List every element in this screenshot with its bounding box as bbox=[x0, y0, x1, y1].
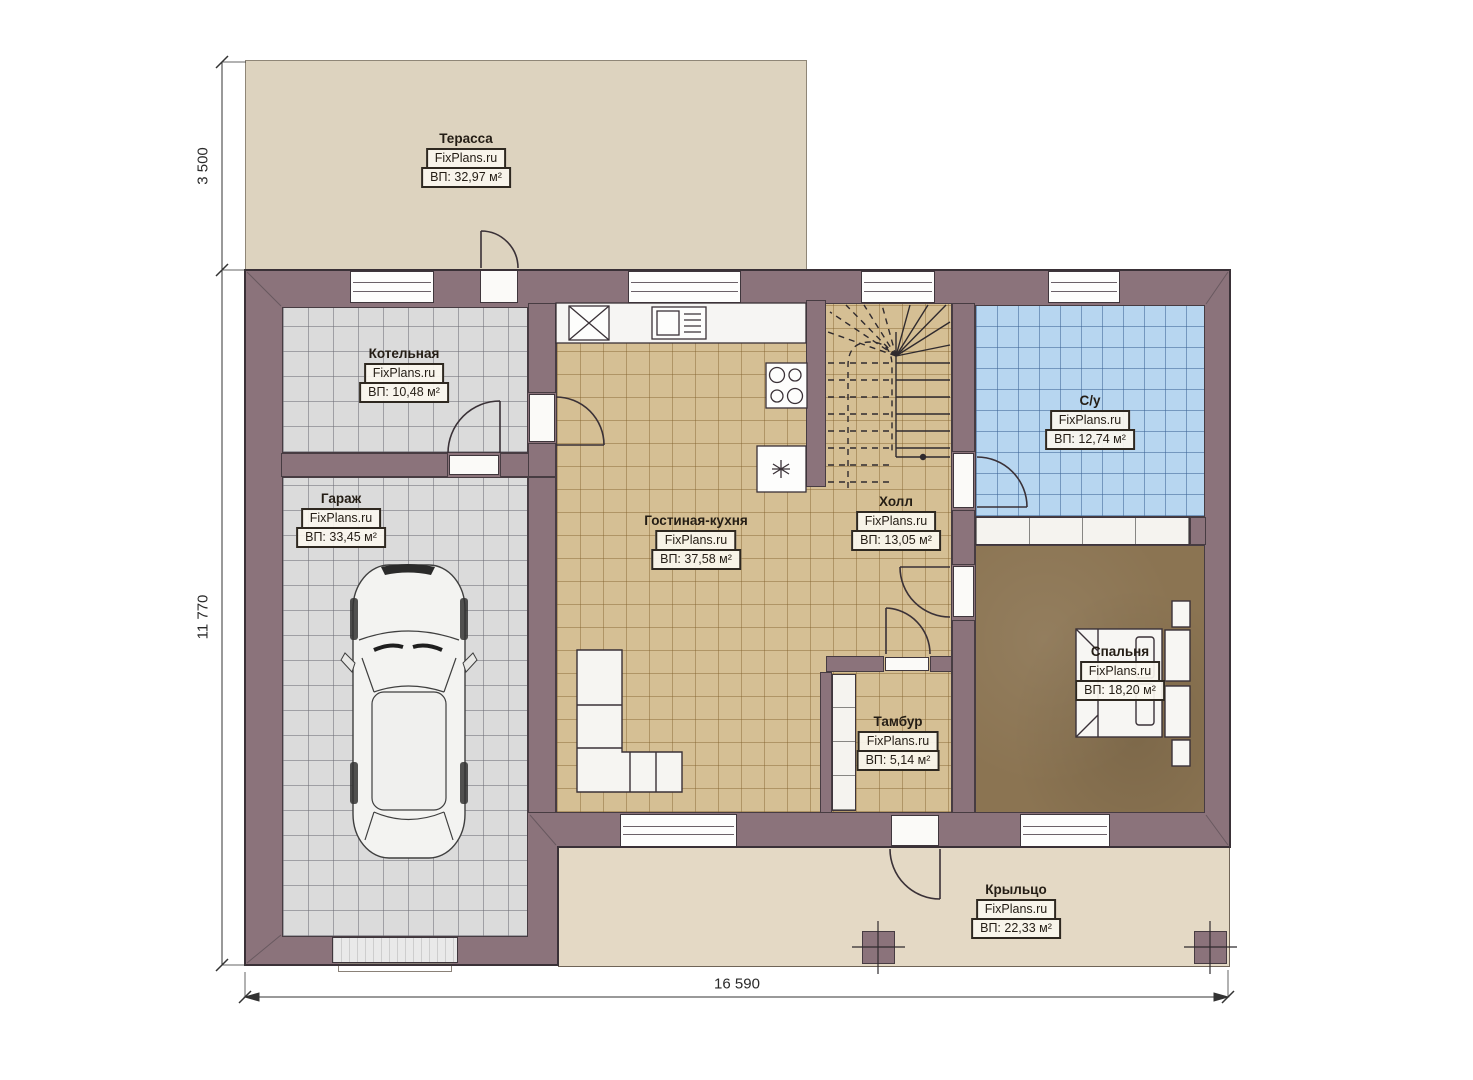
brand: FixPlans.ru bbox=[976, 899, 1057, 920]
room-area: ВП: 22,33 м² bbox=[971, 918, 1061, 939]
room-area: ВП: 37,58 м² bbox=[651, 549, 741, 570]
label-boiler: Котельная FixPlans.ru ВП: 10,48 м² bbox=[359, 346, 449, 403]
dimension-house-height: 11 770 bbox=[195, 595, 212, 640]
wall-boiler-garage-right bbox=[500, 453, 529, 477]
brand: FixPlans.ru bbox=[426, 148, 507, 169]
room-name: Котельная bbox=[369, 346, 440, 361]
wall-tambour-top-right bbox=[930, 656, 952, 672]
brand: FixPlans.ru bbox=[656, 530, 737, 551]
door-opening-boiler-garage bbox=[449, 455, 499, 475]
room-area: ВП: 33,45 м² bbox=[296, 527, 386, 548]
brand: FixPlans.ru bbox=[856, 511, 937, 532]
label-living: Гостиная-кухня FixPlans.ru ВП: 37,58 м² bbox=[644, 513, 747, 570]
window-bathroom bbox=[1048, 271, 1120, 303]
wall-bath-bedroom-stub bbox=[1190, 517, 1206, 545]
window-boiler bbox=[350, 271, 434, 303]
door-opening-bedroom bbox=[953, 566, 974, 617]
wall-hall-bedroom-mid bbox=[952, 510, 975, 565]
room-area: ВП: 12,74 м² bbox=[1045, 429, 1135, 450]
label-hall: Холл FixPlans.ru ВП: 13,05 м² bbox=[851, 494, 941, 551]
wall-boiler-garage-left bbox=[281, 453, 448, 477]
brand: FixPlans.ru bbox=[1050, 410, 1131, 431]
label-garage: Гараж FixPlans.ru ВП: 33,45 м² bbox=[296, 491, 386, 548]
garage-gate bbox=[332, 937, 458, 963]
brand: FixPlans.ru bbox=[301, 508, 382, 529]
room-area: ВП: 32,97 м² bbox=[421, 167, 511, 188]
wall-tambour-left bbox=[820, 672, 832, 813]
door-opening-tambour bbox=[885, 657, 929, 671]
label-terrace: Терасса FixPlans.ru ВП: 32,97 м² bbox=[421, 131, 511, 188]
dimension-house-width: 16 590 bbox=[714, 976, 760, 993]
wall-tambour-bedroom bbox=[952, 620, 975, 813]
bedroom-closet bbox=[975, 517, 1190, 545]
door-opening-bathroom bbox=[953, 453, 974, 508]
terrace-deck bbox=[245, 60, 807, 272]
room-area: ВП: 10,48 м² bbox=[359, 382, 449, 403]
brand: FixPlans.ru bbox=[364, 363, 445, 384]
brand: FixPlans.ru bbox=[858, 731, 939, 752]
room-name: С/у bbox=[1079, 393, 1100, 408]
room-name: Холл bbox=[879, 494, 913, 509]
door-opening-entrance bbox=[891, 815, 939, 846]
tambour-closet bbox=[832, 674, 856, 811]
room-name: Гостиная-кухня bbox=[644, 513, 747, 528]
window-kitchen bbox=[628, 271, 741, 303]
dimension-terrace-height: 3 500 bbox=[195, 147, 212, 185]
floor-plan: Терасса FixPlans.ru ВП: 32,97 м² Котельн… bbox=[0, 0, 1473, 1080]
wall-boiler-kitchen-upper bbox=[528, 303, 556, 393]
wall-garage-living bbox=[528, 477, 556, 813]
label-bathroom: С/у FixPlans.ru ВП: 12,74 м² bbox=[1045, 393, 1135, 450]
wall-boiler-kitchen-lower bbox=[528, 443, 556, 477]
wall-hall-bath-upper bbox=[952, 303, 975, 452]
porch-column-right bbox=[1194, 931, 1227, 964]
window-bedroom bbox=[1020, 814, 1110, 847]
room-area: ВП: 13,05 м² bbox=[851, 530, 941, 551]
room-name: Терасса bbox=[439, 131, 493, 146]
room-area: ВП: 5,14 м² bbox=[857, 750, 940, 771]
label-porch: Крыльцо FixPlans.ru ВП: 22,33 м² bbox=[971, 882, 1061, 939]
brand: FixPlans.ru bbox=[1080, 661, 1161, 682]
window-stairs bbox=[861, 271, 935, 303]
door-opening-terrace bbox=[480, 270, 518, 303]
room-name: Гараж bbox=[321, 491, 361, 506]
window-living-south bbox=[620, 814, 737, 847]
wall-stairs-left bbox=[806, 300, 826, 487]
label-tambour: Тамбур FixPlans.ru ВП: 5,14 м² bbox=[857, 714, 940, 771]
garage-apron bbox=[338, 963, 452, 972]
room-name: Тамбур bbox=[874, 714, 923, 729]
label-bedroom: Спальня FixPlans.ru ВП: 18,20 м² bbox=[1075, 644, 1165, 701]
door-opening-boiler-kitchen bbox=[529, 394, 555, 442]
room-name: Крыльцо bbox=[985, 882, 1046, 897]
room-name: Спальня bbox=[1091, 644, 1149, 659]
room-area: ВП: 18,20 м² bbox=[1075, 680, 1165, 701]
porch-column-left bbox=[862, 931, 895, 964]
wall-tambour-top-left bbox=[826, 656, 884, 672]
